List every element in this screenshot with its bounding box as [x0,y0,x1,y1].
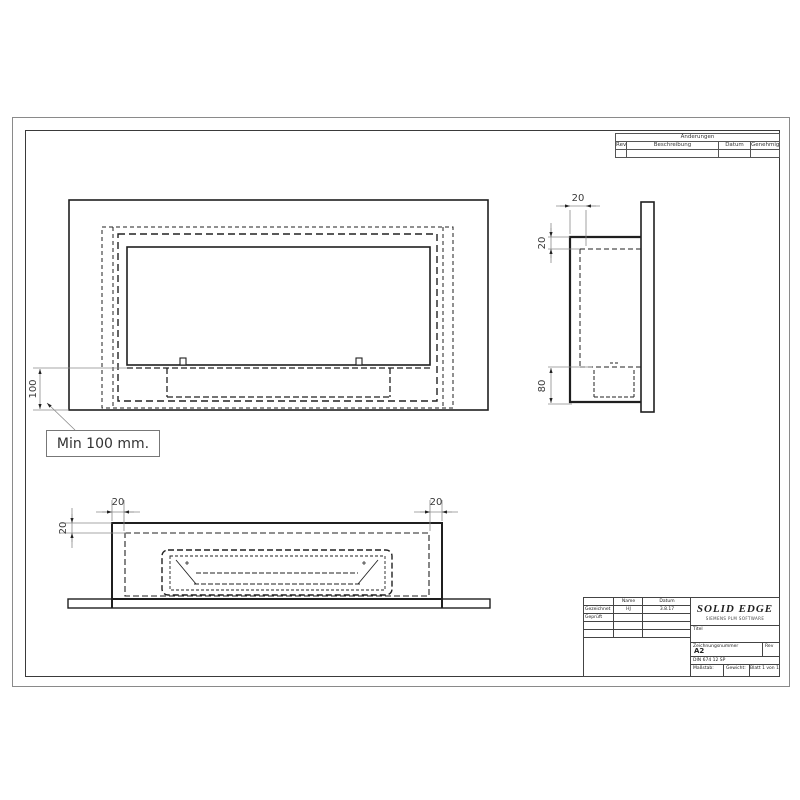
dim-plan-right-wall: 20 [430,497,443,508]
plan-back-plate [68,599,490,608]
plan-screw-marks [185,561,366,565]
drawing-number-field: Zeichnungsnummer A2 [691,643,763,656]
approval-header-row: Name Datum [584,598,690,606]
file-row: DIN 674 12 SP [691,657,779,665]
dim-plan-left-wall: 20 [112,497,125,508]
revision-col-description: Beschreibung [627,142,719,149]
approval-col-name: Name [614,598,643,605]
scale-weight-sheet-row: Maßstab: Gewicht: Blatt 1 von 1 [691,665,779,676]
dim-side-burner: 80 [537,380,548,393]
front-clip-right [356,358,362,365]
approval-cell [584,630,614,637]
side-view: 20 20 80 [537,193,654,412]
approval-col-date: Datum [643,598,690,605]
sheet-count-field: Blatt 1 von 1 [750,665,779,676]
rev-label: Rev [765,644,773,649]
checked-label: Geprüft [584,614,614,621]
plan-burner-diagonal-left [176,560,196,584]
approval-row-drawn: Gezeichnet HJ 3.8.17 [584,606,690,614]
approval-row-empty [584,622,690,630]
sheet-size-value: A2 [694,647,704,655]
drawing-number-row: Zeichnungsnummer A2 Rev [691,643,779,657]
logo-subtitle: SIEMENS PLM SOFTWARE [706,616,765,621]
revision-cell [616,150,627,157]
revision-col-rev: Rev [616,142,627,149]
title-block-main: SOLID EDGE SIEMENS PLM SOFTWARE Titel Ze… [691,598,779,676]
callout-leader-line [47,403,75,430]
front-clip-left [180,358,186,365]
revision-table-empty-row [616,150,779,157]
revision-col-date: Datum [719,142,751,149]
checked-name [614,614,643,621]
logo-cell: SOLID EDGE SIEMENS PLM SOFTWARE [691,598,779,626]
scale-field: Maßstab: [691,665,724,676]
approval-row-empty [584,630,690,638]
dim-side-top: 20 [537,237,548,250]
plan-burner-diagonal-right [358,560,378,584]
approval-blank [584,598,614,605]
dim-side-depth: 20 [572,193,585,204]
approval-cell [584,622,614,629]
revision-table-header: Rev Beschreibung Datum Genehmigt [616,142,779,150]
revision-table-title: Änderungen [616,134,779,142]
revision-col-approved: Genehmigt [751,142,779,149]
solid-edge-logo: SOLID EDGE [697,603,773,615]
plan-view: 20 20 20 [58,497,490,608]
side-box-outline [570,237,641,402]
revision-cell [751,150,779,157]
title-field: Titel [691,626,779,643]
drawn-name: HJ [614,606,643,613]
drawing-canvas: 100 20 20 [0,0,800,800]
plan-burner-outer-hidden [162,550,392,595]
title-block-approvals: Name Datum Gezeichnet HJ 3.8.17 Geprüft [584,598,691,676]
drawn-label: Gezeichnet [584,606,614,613]
approval-cell [614,622,643,629]
revision-table: Änderungen Rev Beschreibung Datum Genehm… [615,133,780,158]
title-field-label: Titel [693,627,703,632]
dim-front-height: 100 [28,379,39,398]
dim-plan-front-wall: 20 [58,522,69,535]
weight-field: Gewicht: [724,665,750,676]
front-opening [127,247,430,365]
min-distance-callout: Min 100 mm. [46,430,160,457]
front-view: 100 [28,200,488,430]
approval-cell [614,630,643,637]
file-text: DIN 674 12 SP [693,658,725,663]
min-distance-text: Min 100 mm. [57,436,149,452]
side-back-plate [641,202,654,412]
checked-date [643,614,690,621]
revision-cell [719,150,751,157]
rev-field: Rev [763,643,779,656]
approval-row-checked: Geprüft [584,614,690,622]
company-field [584,638,690,676]
drawn-date: 3.8.17 [643,606,690,613]
revision-cell [627,150,719,157]
approval-cell [643,622,690,629]
plan-hidden-inner [125,533,429,596]
approval-cell [643,630,690,637]
drawing-sheet: 100 20 20 [0,0,800,800]
title-block: Name Datum Gezeichnet HJ 3.8.17 Geprüft [583,597,780,677]
